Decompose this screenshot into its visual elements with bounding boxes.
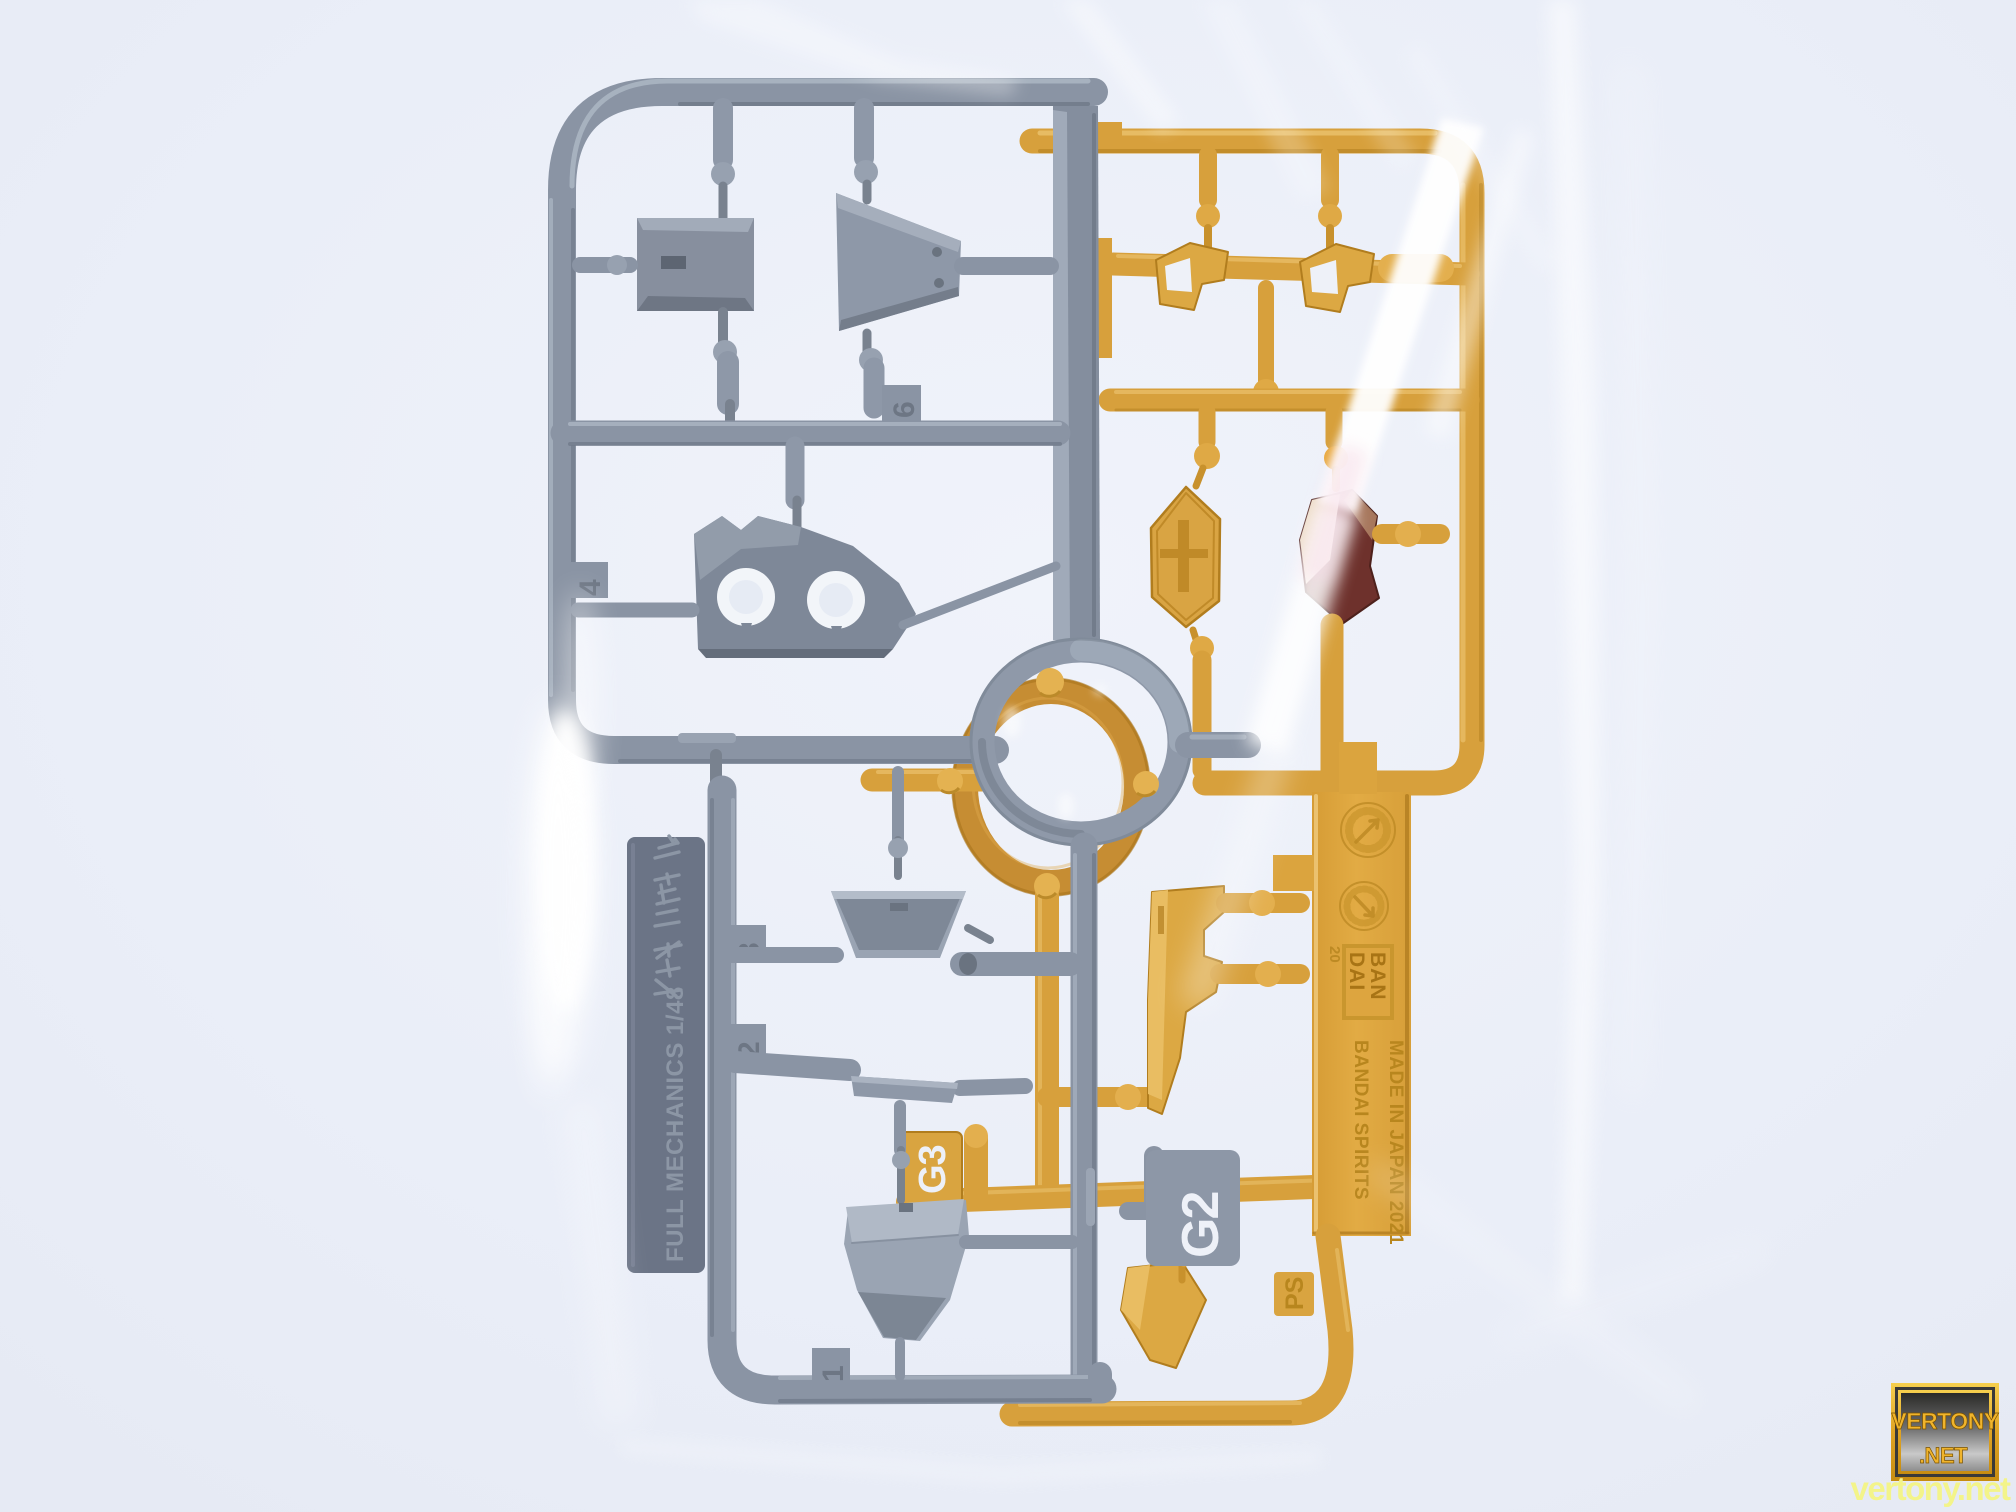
svg-text:1: 1	[817, 1365, 850, 1382]
svg-text:VERTONY: VERTONY	[1891, 1408, 1998, 1434]
svg-text:20: 20	[1326, 946, 1343, 963]
svg-text:DAI: DAI	[1345, 952, 1368, 991]
svg-text:.NET: .NET	[1919, 1443, 1968, 1468]
svg-text:MADE IN JAPAN 2021: MADE IN JAPAN 2021	[1385, 1040, 1406, 1245]
svg-text:vertony.net: vertony.net	[1851, 1470, 2011, 1507]
svg-text:PS: PS	[1281, 1277, 1309, 1310]
svg-text:FULL MECHANICS 1/48: FULL MECHANICS 1/48	[662, 986, 689, 1262]
svg-text:BANDAI SPIRITS: BANDAI SPIRITS	[1350, 1040, 1371, 1200]
svg-text:BAN: BAN	[1366, 952, 1389, 1001]
svg-text:G2: G2	[1172, 1193, 1230, 1258]
svg-text:G3: G3	[912, 1145, 954, 1194]
svg-text:6: 6	[888, 401, 921, 418]
